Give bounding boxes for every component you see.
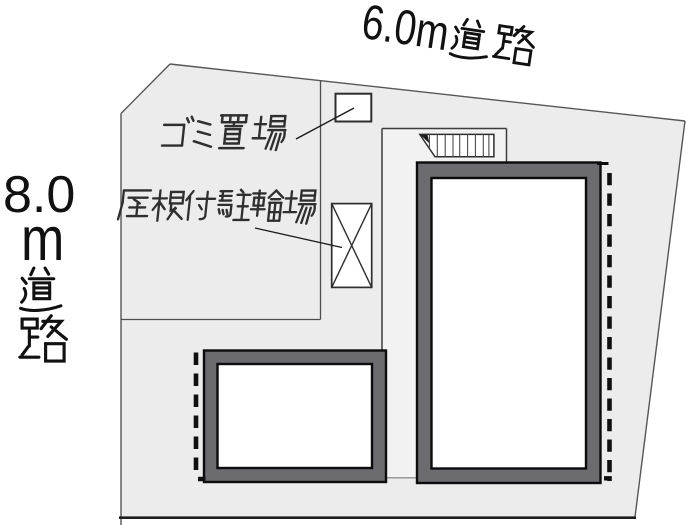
svg-text:m: m: [21, 205, 64, 274]
